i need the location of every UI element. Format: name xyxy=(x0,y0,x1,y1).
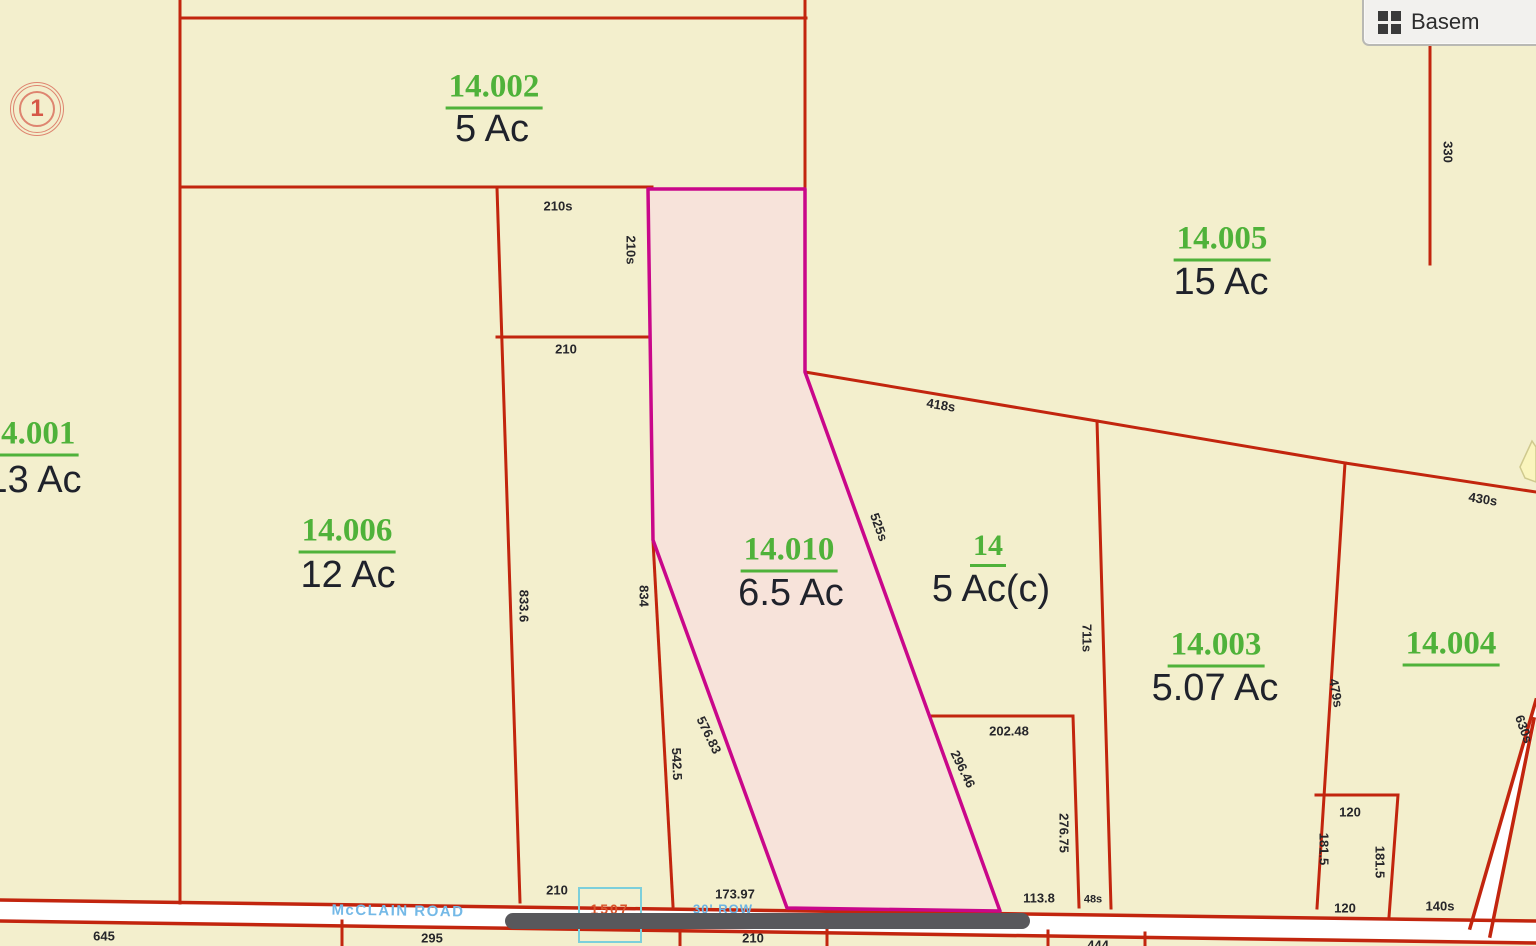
dim-181-5-left: 181.5 xyxy=(1318,833,1331,866)
section-marker-number: 1 xyxy=(19,91,55,127)
parcel-acreage-14006: 12 Ac xyxy=(300,556,395,594)
parcel-number: 14.006 xyxy=(299,513,396,554)
parcel-label-14: 14 xyxy=(970,531,1006,561)
dim-210s-side: 210s xyxy=(625,236,638,265)
parcel-label-14010: 14.010 xyxy=(741,534,838,567)
section-marker: 1 xyxy=(10,82,64,136)
dim-276-75: 276.75 xyxy=(1058,813,1071,853)
parcel-label-14004: 14.004 xyxy=(1403,628,1500,661)
dim-330: 330 xyxy=(1442,141,1455,163)
parcel-acreage-14005: 15 Ac xyxy=(1173,263,1268,301)
parcel-acreage-14003: 5.07 Ac xyxy=(1152,669,1279,707)
parcel-number: 14.001 xyxy=(0,416,78,457)
dim-140s: 140s xyxy=(1426,900,1455,913)
dim-120-top: 120 xyxy=(1339,806,1361,819)
parcel-number: 14.003 xyxy=(1168,627,1265,668)
parcel-label-14003: 14.003 xyxy=(1168,629,1265,662)
parcel-label-14005: 14.005 xyxy=(1174,223,1271,256)
parcel-number: 14.005 xyxy=(1174,221,1271,262)
parcel-acreage-14001: 13 Ac xyxy=(0,461,82,499)
dim-210-below: 210 xyxy=(742,932,764,945)
dim-120-bottom: 120 xyxy=(1334,902,1356,915)
dim-542-5: 542.5 xyxy=(670,748,684,781)
parcel-number: 14.004 xyxy=(1403,626,1500,667)
parcel-number: 14.010 xyxy=(741,532,838,573)
basemap-grid-icon xyxy=(1378,11,1401,34)
parcel-acreage-14010: 6.5 Ac xyxy=(738,574,844,612)
parcel-label-14006: 14.006 xyxy=(299,515,396,548)
dim-834: 834 xyxy=(638,585,651,607)
parcel-number: 14.002 xyxy=(446,69,543,110)
parcel-label-14002: 14.002 xyxy=(446,71,543,104)
dim-113-8: 113.8 xyxy=(1023,892,1055,905)
horizontal-scrollbar-thumb[interactable] xyxy=(505,913,1030,929)
dim-210s-top: 210s xyxy=(544,200,573,213)
dim-173-97: 173.97 xyxy=(715,888,755,901)
basemap-button-label: Basem xyxy=(1411,9,1479,35)
dim-210-road: 210 xyxy=(546,884,568,897)
parcel-label-14001: 14.001 xyxy=(0,418,78,451)
parcel-acreage-14: 5 Ac(c) xyxy=(932,570,1050,608)
dim-48s: 48s xyxy=(1084,895,1102,906)
parcel-map-canvas xyxy=(0,0,1536,946)
dim-833-6: 833.6 xyxy=(518,590,531,623)
dim-210-mid: 210 xyxy=(555,343,577,356)
dim-711s: 711s xyxy=(1081,624,1094,652)
dim-202-48: 202.48 xyxy=(989,725,1029,738)
dim-181-5-right: 181.5 xyxy=(1374,846,1387,879)
parcel-map-viewport[interactable]: 14.002 5 Ac 14.005 15 Ac 14.001 13 Ac 14… xyxy=(0,0,1536,946)
road-name-mcclain: McCLAIN ROAD xyxy=(331,903,464,920)
parcel-number: 14 xyxy=(970,529,1006,567)
dim-295: 295 xyxy=(421,932,443,945)
basemap-button[interactable]: Basem xyxy=(1362,0,1536,46)
parcel-acreage-14002: 5 Ac xyxy=(455,110,529,148)
dim-444: 444 xyxy=(1087,939,1109,946)
dim-645: 645 xyxy=(93,930,115,943)
